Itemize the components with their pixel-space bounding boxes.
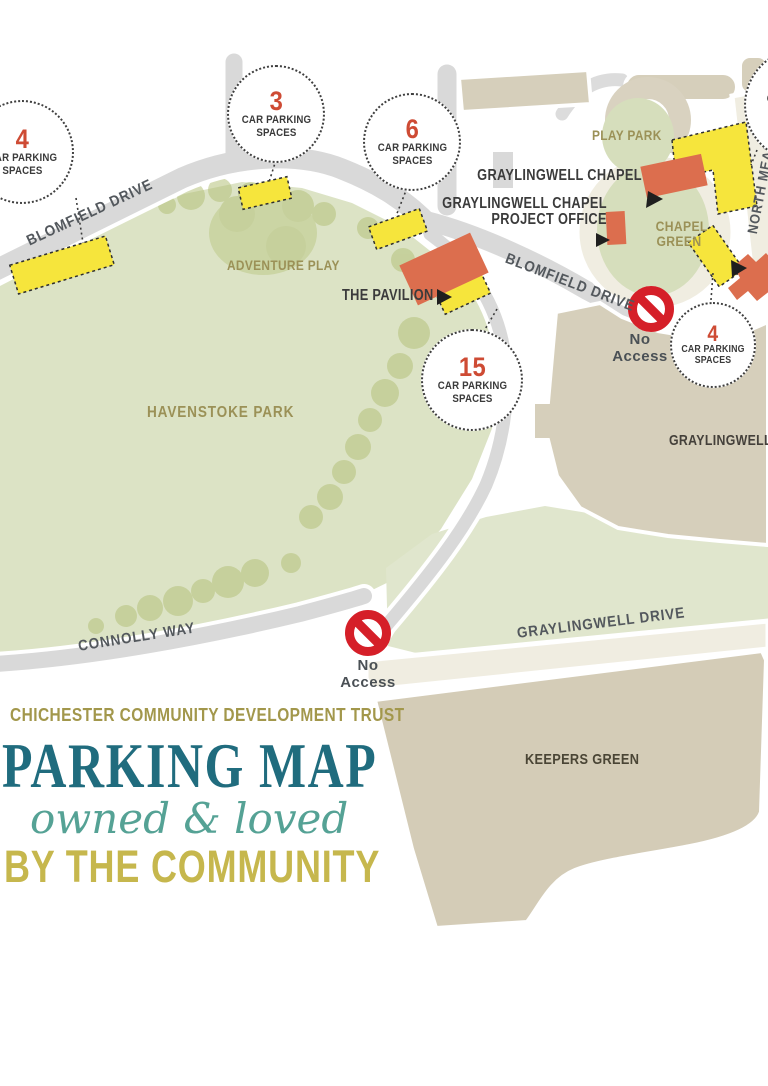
pavilion-label: THE PAVILION	[342, 287, 434, 305]
badge-count: 15	[437, 355, 507, 380]
badge-label: CAR PARKING	[241, 114, 311, 127]
chapel-green-label-line1: CHAPEL	[656, 220, 703, 235]
badge-count: 4	[681, 324, 744, 344]
chapel-green-label-line2: GREEN	[656, 235, 703, 250]
badge-label: CAR PARKING	[377, 142, 447, 155]
no-access-sign-connolly	[345, 610, 391, 656]
chapel-green-label: CHAPEL GREEN	[656, 220, 703, 249]
org-title: CHICHESTER COMMUNITY DEVELOPMENT TRUST	[10, 705, 404, 726]
no-access-label-connolly: No Access	[337, 657, 399, 691]
badge-label: SPACES	[241, 127, 311, 140]
no-access-line1: No	[609, 331, 671, 348]
parking-badge-chapel: 4 CAR PARKING SPACES	[670, 302, 756, 388]
graylingwell-chapel-label: GRAYLINGWELL CHAPEL	[477, 167, 642, 185]
badge-label: CAR PARKING	[681, 344, 744, 355]
no-access-label-blomfield: No Access	[609, 331, 671, 365]
tagline: owned & loved	[30, 796, 348, 842]
project-office-label-line1: GRAYLINGWELL CHAPEL	[442, 196, 607, 212]
parking-badge-pavilion-east: 15 CAR PARKING SPACES	[421, 329, 523, 431]
graylingwell-park-label: GRAYLINGWELL PARK	[669, 433, 768, 449]
adventure-play-label: ADVENTURE PLAY	[227, 257, 340, 273]
play-park-label: PLAY PARK	[592, 127, 662, 143]
badge-label: CAR PARKING	[437, 380, 507, 393]
no-access-sign-blomfield	[628, 286, 674, 332]
no-access-line2: Access	[337, 674, 399, 691]
havenstoke-park-label: HAVENSTOKE PARK	[147, 404, 294, 422]
no-access-line1: No	[337, 657, 399, 674]
page-title: PARKING MAP	[2, 734, 377, 798]
badge-label: SPACES	[437, 393, 507, 406]
badge-label: SPACES	[681, 355, 744, 366]
parking-map-page: 4 CAR PARKING SPACES 3 CAR PARKING SPACE…	[0, 0, 768, 1086]
parking-badge-pavilion-west: 6 CAR PARKING SPACES	[363, 93, 461, 191]
project-office-label-line2: PROJECT OFFICE	[442, 212, 607, 228]
badge-count: 6	[377, 117, 447, 142]
badge-count: 4	[0, 127, 57, 152]
no-access-line2: Access	[609, 348, 671, 365]
keepers-green-area	[375, 651, 766, 928]
badge-label: CAR PARKING	[0, 152, 57, 165]
subtitle: BY THE COMMUNITY	[4, 843, 380, 891]
badge-count: 3	[241, 89, 311, 114]
parking-badge-adventure: 3 CAR PARKING SPACES	[227, 65, 325, 163]
project-office-label: GRAYLINGWELL CHAPEL PROJECT OFFICE	[442, 196, 607, 228]
badge-label: SPACES	[0, 165, 57, 178]
keepers-green-label: KEEPERS GREEN	[525, 751, 639, 768]
badge-label: SPACES	[377, 155, 447, 168]
